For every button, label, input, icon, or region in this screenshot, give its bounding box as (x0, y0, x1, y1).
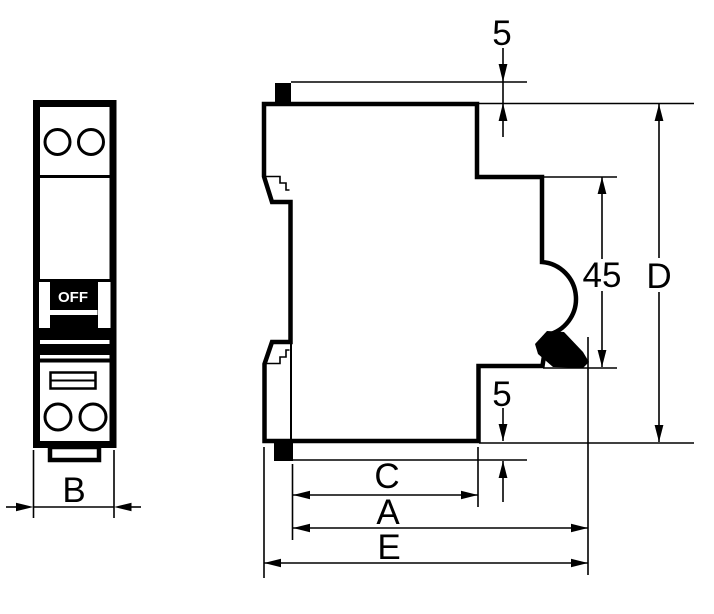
side-bottom-tab (274, 441, 293, 461)
front-bottom-tab (50, 447, 99, 460)
dim-5top-arrow-down-icon (499, 64, 508, 82)
dim-a-arrow-left-icon (293, 524, 310, 532)
dim-a-arrow-right-icon (571, 524, 588, 532)
dim-c-arrow-right-icon (461, 491, 478, 499)
drawing-svg: OFF B 5 (0, 0, 714, 614)
dim-b-arrow-right-icon (114, 503, 132, 511)
dim-a-label: A (376, 493, 400, 532)
dim-45-arrow-up-icon (598, 177, 607, 194)
side-toggle-lever (275, 83, 291, 104)
dim-d-label: D (646, 257, 671, 296)
front-bottom-terminal-screw-left (45, 404, 71, 430)
dim-d-arrow-up-icon (655, 104, 664, 121)
dim-c-label: C (374, 457, 399, 496)
dim-5bot-label: 5 (492, 375, 511, 414)
dim-e-arrow-right-icon (571, 559, 588, 567)
side-body-outline (264, 104, 576, 441)
front-view: OFF (37, 104, 114, 461)
dim-45-arrow-down-icon (598, 350, 607, 367)
dim-e-label: E (377, 528, 400, 567)
front-top-terminal-screw-left (45, 130, 70, 155)
dimension-e: E (264, 447, 588, 578)
front-top-terminal-screw-right (79, 130, 104, 155)
dim-b-arrow-left-icon (16, 503, 34, 511)
toggle-off-label: OFF (58, 289, 88, 306)
mcb-dimension-drawing: OFF B 5 (0, 0, 714, 614)
front-black-band (37, 344, 113, 355)
front-body (37, 104, 114, 445)
dim-5bot-arrow-up-icon (499, 461, 508, 478)
dim-5top-arrow-up-icon (499, 103, 508, 121)
dim-45-label: 45 (583, 256, 622, 295)
dim-d-arrow-down-icon (655, 425, 664, 442)
dim-5bot-arrow-down-icon (499, 424, 508, 441)
front-black-band-thin (37, 359, 113, 363)
dim-c-arrow-left-icon (293, 491, 310, 499)
dim-e-arrow-left-icon (264, 559, 281, 567)
dim-b-label: B (62, 471, 85, 510)
front-toggle-slot-left (39, 282, 50, 328)
dim-5top-label: 5 (492, 14, 511, 53)
front-bottom-terminal-screw-right (80, 404, 106, 430)
front-toggle-handle-gap (50, 310, 98, 315)
side-view (264, 83, 589, 461)
front-toggle-slot-right (98, 282, 111, 328)
